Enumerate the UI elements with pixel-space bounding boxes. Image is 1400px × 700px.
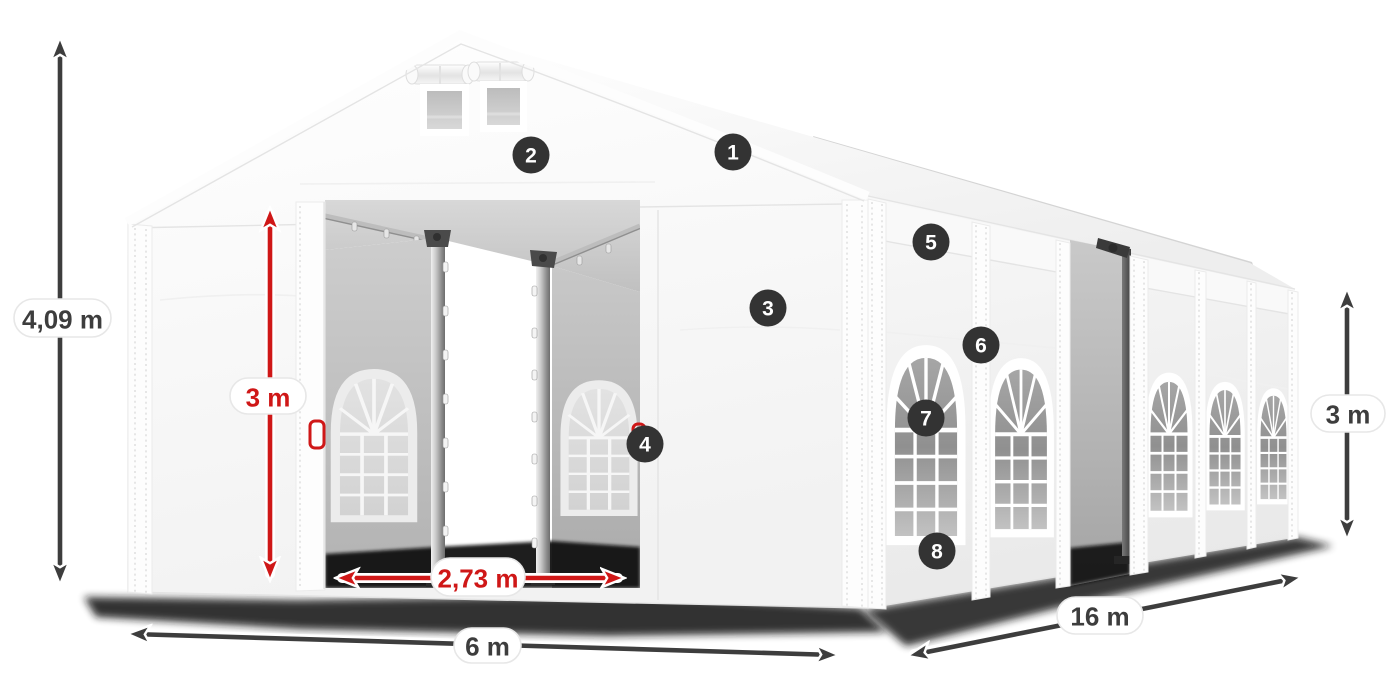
callout-1[interactable]: 1 (715, 134, 752, 171)
dim-front-width-label: 6 m (465, 631, 510, 661)
dim-entrance-width-label: 2,73 m (438, 563, 519, 593)
dim-wall-height-label: 3 m (1326, 399, 1371, 429)
dim-height-total: 4,09 m (14, 42, 111, 580)
side-window-3 (1146, 373, 1193, 518)
tent-dimension-figure: 4,09 m 3 m 2,73 m 6 m 16 m 3 m 1 2 (0, 0, 1400, 700)
callout-6[interactable]: 6 (963, 327, 1000, 364)
callout-4[interactable]: 4 (627, 426, 664, 463)
callout-3[interactable]: 3 (750, 290, 787, 327)
callout-5-number: 5 (925, 232, 937, 255)
dim-entrance-height-label: 3 m (246, 382, 291, 412)
callout-8-number: 8 (931, 541, 943, 564)
callout-4-number: 4 (639, 434, 651, 457)
side-window-1 (887, 345, 966, 545)
dim-wall-height: 3 m (1311, 293, 1385, 535)
callout-2-number: 2 (525, 145, 537, 168)
side-window-2 (988, 358, 1054, 537)
callout-5[interactable]: 5 (913, 224, 950, 261)
interior-window-left (331, 369, 417, 522)
side-window-4 (1205, 382, 1244, 511)
callout-7[interactable]: 7 (908, 400, 945, 437)
side-entrance-opening (1070, 238, 1133, 586)
dim-height-total-label: 4,09 m (22, 304, 103, 334)
callout-3-number: 3 (762, 298, 774, 321)
callout-1-number: 1 (727, 142, 739, 165)
side-window-5 (1257, 388, 1290, 504)
doorway-interior (325, 200, 640, 588)
callout-8[interactable]: 8 (919, 533, 956, 570)
dim-side-length-label: 16 m (1070, 601, 1129, 631)
callout-2[interactable]: 2 (513, 137, 550, 174)
callout-6-number: 6 (975, 335, 987, 358)
callout-7-number: 7 (920, 408, 932, 431)
tent-illustration: 4,09 m 3 m 2,73 m 6 m 16 m 3 m 1 2 (0, 0, 1400, 700)
interior-window-right (560, 380, 637, 516)
